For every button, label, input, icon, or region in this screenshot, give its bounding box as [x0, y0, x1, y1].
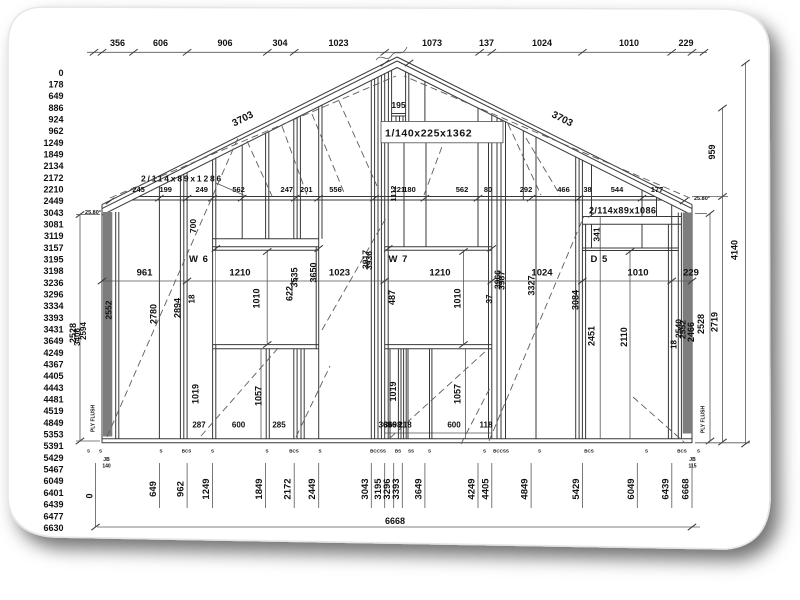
- svg-text:1019: 1019: [388, 381, 398, 401]
- svg-text:1019: 1019: [191, 384, 201, 404]
- svg-text:SS: SS: [408, 449, 414, 454]
- svg-text:1010: 1010: [252, 288, 262, 308]
- svg-text:4849: 4849: [520, 478, 531, 499]
- svg-text:247: 247: [281, 185, 294, 194]
- svg-text:886: 886: [48, 103, 63, 113]
- svg-text:180: 180: [403, 185, 416, 194]
- svg-text:292: 292: [520, 185, 533, 194]
- svg-text:466: 466: [557, 185, 570, 194]
- svg-text:4405: 4405: [480, 478, 491, 500]
- svg-text:2719: 2719: [710, 312, 720, 332]
- svg-text:962: 962: [176, 481, 187, 497]
- svg-text:3393: 3393: [43, 313, 63, 323]
- svg-text:4249: 4249: [467, 478, 478, 499]
- svg-text:S: S: [318, 449, 321, 454]
- svg-text:2894: 2894: [173, 298, 183, 318]
- svg-text:3198: 3198: [43, 266, 63, 276]
- svg-text:BCS: BCS: [677, 449, 687, 454]
- svg-text:2451: 2451: [586, 326, 596, 346]
- svg-text:1023: 1023: [329, 268, 350, 279]
- svg-text:3327: 3327: [527, 275, 537, 295]
- svg-text:140: 140: [102, 464, 111, 470]
- svg-text:356: 356: [110, 38, 125, 48]
- svg-text:4249: 4249: [43, 348, 63, 358]
- svg-text:3157: 3157: [43, 243, 63, 253]
- svg-text:3043: 3043: [43, 208, 63, 218]
- svg-text:S: S: [211, 449, 214, 454]
- svg-text:S: S: [697, 449, 700, 454]
- svg-text:3535: 3535: [290, 267, 300, 287]
- svg-text:2466: 2466: [686, 322, 696, 342]
- svg-text:3649: 3649: [43, 336, 63, 346]
- svg-text:1249: 1249: [43, 138, 63, 148]
- svg-text:4140: 4140: [730, 240, 740, 260]
- svg-text:S: S: [645, 449, 648, 454]
- svg-text:3043: 3043: [360, 478, 371, 499]
- svg-text:304: 304: [272, 38, 287, 48]
- svg-text:3334: 3334: [43, 301, 63, 311]
- svg-text:6668: 6668: [681, 478, 692, 499]
- svg-text:1057: 1057: [253, 386, 263, 406]
- svg-text:1210: 1210: [229, 268, 250, 279]
- svg-text:959: 959: [707, 144, 717, 159]
- svg-text:249: 249: [195, 185, 208, 194]
- svg-text:487: 487: [387, 290, 397, 305]
- svg-text:S: S: [265, 449, 268, 454]
- svg-text:1023: 1023: [328, 38, 348, 48]
- svg-text:1057: 1057: [452, 384, 462, 404]
- svg-text:5353: 5353: [43, 430, 63, 440]
- svg-text:1849: 1849: [254, 478, 265, 499]
- svg-text:S: S: [538, 449, 541, 454]
- svg-text:700: 700: [188, 219, 198, 233]
- svg-text:3081: 3081: [43, 220, 63, 230]
- svg-text:1210: 1210: [429, 268, 450, 279]
- svg-text:BCCSS: BCCSS: [370, 449, 386, 454]
- svg-text:37: 37: [485, 294, 494, 303]
- svg-text:245: 245: [132, 185, 145, 194]
- svg-text:287: 287: [192, 421, 206, 430]
- svg-text:962: 962: [48, 126, 63, 136]
- svg-text:BCCSS: BCCSS: [493, 449, 509, 454]
- svg-text:4405: 4405: [43, 371, 63, 381]
- svg-text:3119: 3119: [44, 231, 64, 241]
- svg-text:1112: 1112: [389, 186, 398, 202]
- svg-text:6049: 6049: [626, 478, 637, 499]
- svg-text:4519: 4519: [43, 406, 63, 416]
- svg-text:JB: JB: [689, 457, 696, 463]
- svg-text:5429: 5429: [571, 478, 582, 499]
- svg-text:2449: 2449: [43, 196, 63, 206]
- svg-text:PLY FLUSH: PLY FLUSH: [91, 404, 97, 432]
- svg-text:3987: 3987: [497, 271, 507, 290]
- svg-text:6668: 6668: [385, 516, 405, 526]
- svg-text:199: 199: [159, 185, 172, 194]
- svg-text:2449: 2449: [307, 478, 318, 499]
- svg-text:2552: 2552: [104, 300, 114, 319]
- svg-text:2210: 2210: [43, 185, 63, 195]
- svg-text:2172: 2172: [283, 478, 294, 499]
- svg-text:649: 649: [148, 481, 159, 497]
- svg-text:649: 649: [48, 91, 63, 101]
- svg-text:600: 600: [447, 421, 461, 430]
- svg-text:961: 961: [137, 268, 154, 279]
- svg-text:229: 229: [683, 268, 699, 279]
- svg-text:D 5: D 5: [591, 254, 609, 265]
- svg-text:S: S: [87, 449, 90, 454]
- svg-text:6049: 6049: [43, 476, 63, 486]
- svg-text:556: 556: [329, 185, 342, 194]
- svg-text:1/140x225x1362: 1/140x225x1362: [385, 128, 472, 140]
- svg-text:1249: 1249: [201, 478, 212, 499]
- svg-text:3393: 3393: [391, 478, 402, 499]
- svg-text:3236: 3236: [43, 278, 63, 288]
- svg-text:2/114x89x1086: 2/114x89x1086: [589, 206, 656, 216]
- svg-text:2/114x89x1286: 2/114x89x1286: [141, 174, 223, 184]
- svg-text:6630: 6630: [43, 523, 63, 533]
- svg-text:JB: JB: [103, 457, 110, 463]
- svg-text:3936: 3936: [364, 251, 374, 270]
- svg-text:906: 906: [217, 38, 232, 48]
- svg-text:4481: 4481: [43, 395, 63, 405]
- svg-text:3431: 3431: [43, 325, 63, 335]
- svg-text:544: 544: [611, 185, 624, 194]
- svg-text:600: 600: [232, 421, 246, 430]
- svg-text:BCS: BCS: [182, 449, 192, 454]
- svg-text:0: 0: [58, 68, 63, 78]
- svg-text:3195: 3195: [43, 255, 63, 265]
- svg-text:25.80°: 25.80°: [85, 210, 101, 216]
- svg-text:3649: 3649: [413, 478, 424, 499]
- svg-text:1073: 1073: [422, 38, 442, 48]
- svg-text:6401: 6401: [43, 488, 63, 498]
- svg-text:3296: 3296: [43, 290, 63, 300]
- svg-text:1849: 1849: [43, 150, 63, 160]
- svg-text:2528: 2528: [696, 314, 706, 334]
- svg-text:195: 195: [391, 100, 405, 110]
- svg-text:622: 622: [285, 286, 295, 301]
- svg-text:2110: 2110: [619, 327, 629, 347]
- svg-text:218: 218: [398, 421, 412, 430]
- svg-text:1024: 1024: [532, 38, 552, 48]
- svg-text:178: 178: [48, 80, 63, 90]
- svg-text:5429: 5429: [43, 453, 63, 463]
- svg-text:1010: 1010: [619, 38, 639, 48]
- svg-text:562: 562: [456, 185, 469, 194]
- svg-text:1010: 1010: [453, 288, 463, 308]
- svg-text:4443: 4443: [43, 383, 63, 393]
- svg-text:924: 924: [48, 115, 63, 125]
- svg-text:6439: 6439: [660, 478, 671, 499]
- svg-text:S: S: [99, 449, 102, 454]
- svg-text:606: 606: [153, 38, 168, 48]
- svg-text:6477: 6477: [43, 511, 63, 521]
- svg-text:115: 115: [688, 464, 696, 470]
- svg-text:BS: BS: [395, 449, 401, 454]
- svg-text:6439: 6439: [43, 500, 63, 510]
- svg-text:5467: 5467: [43, 465, 63, 475]
- svg-text:118: 118: [480, 421, 493, 430]
- svg-text:3084: 3084: [571, 290, 581, 310]
- svg-text:0: 0: [85, 493, 95, 498]
- svg-text:5391: 5391: [43, 441, 63, 451]
- svg-text:BCS: BCS: [584, 449, 594, 454]
- svg-text:2172: 2172: [43, 173, 63, 183]
- svg-text:18: 18: [188, 294, 197, 303]
- svg-text:S: S: [483, 449, 486, 454]
- svg-text:2594: 2594: [79, 322, 88, 340]
- svg-text:S: S: [428, 449, 431, 454]
- svg-text:137: 137: [479, 38, 494, 48]
- svg-text:341: 341: [591, 227, 601, 241]
- svg-text:1010: 1010: [627, 268, 648, 279]
- svg-text:W 6: W 6: [189, 254, 209, 265]
- svg-text:2134: 2134: [43, 161, 63, 171]
- svg-text:229: 229: [678, 38, 693, 48]
- svg-text:2780: 2780: [149, 304, 159, 324]
- svg-text:38: 38: [583, 185, 591, 194]
- svg-text:BCS: BCS: [289, 449, 299, 454]
- svg-text:PLY FLUSH: PLY FLUSH: [701, 405, 707, 433]
- svg-text:4367: 4367: [43, 360, 63, 370]
- svg-text:S: S: [159, 449, 162, 454]
- svg-text:3650: 3650: [309, 262, 319, 282]
- svg-text:W 7: W 7: [389, 254, 409, 265]
- svg-text:177: 177: [651, 185, 664, 194]
- svg-text:285: 285: [272, 421, 286, 430]
- svg-text:18: 18: [670, 340, 679, 349]
- svg-text:4849: 4849: [43, 418, 63, 428]
